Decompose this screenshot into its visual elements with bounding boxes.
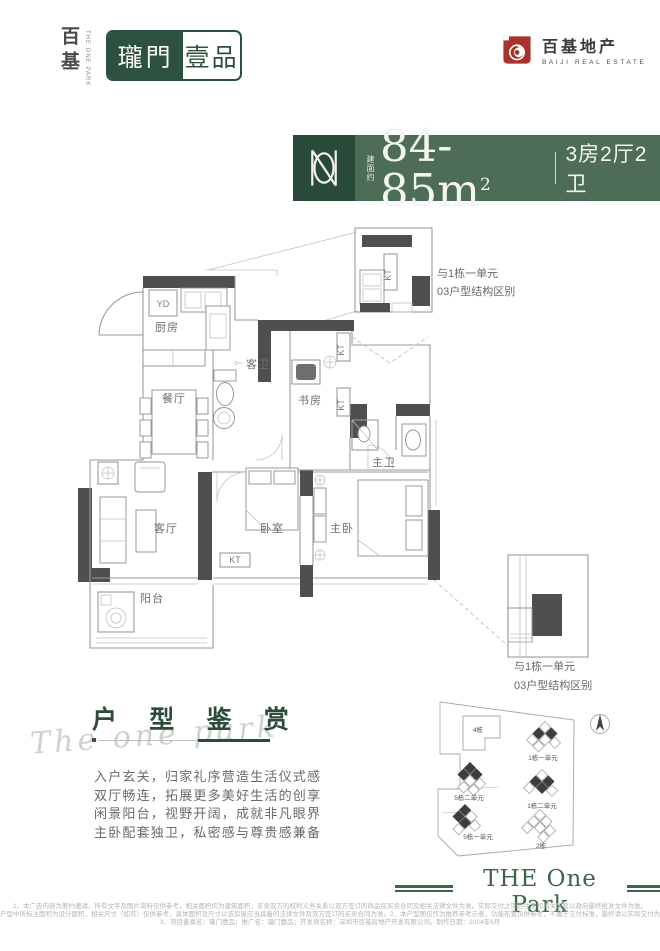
footer-banner-bars-left bbox=[395, 885, 453, 893]
label-kt-callout: KT bbox=[383, 269, 393, 281]
living-furniture bbox=[98, 462, 165, 563]
label-study: 书房 bbox=[298, 394, 322, 407]
label-living: 客厅 bbox=[154, 521, 178, 535]
balcony-fixtures bbox=[98, 592, 134, 632]
area-value: 84-85m2 bbox=[380, 123, 547, 213]
one-park-monogram-icon bbox=[302, 143, 346, 193]
label-kitchen: 厨房 bbox=[155, 321, 179, 334]
label-balcony: 阳台 bbox=[140, 591, 164, 605]
label-kt-shaft-1: KT bbox=[336, 344, 346, 356]
label-dining: 餐厅 bbox=[162, 391, 186, 405]
callout-top-detail bbox=[355, 228, 432, 312]
developer-name-en: BAIJI REAL ESTATE bbox=[542, 59, 646, 66]
project-logo: 瓏門 壹品 bbox=[106, 30, 242, 81]
layout-spec: 3房2厅2卫 bbox=[565, 138, 660, 198]
callout-bottom-line2: 03户型结构区别 bbox=[514, 678, 592, 692]
floor-plan: YD 厨房 餐厅 客卫 书房 客厅 卧室 主卧 主卫 阳台 KT KT KT K… bbox=[0, 210, 660, 710]
callout-bottom-line1: 与1栋一单元 bbox=[514, 659, 575, 673]
guest-bath-fixtures bbox=[214, 362, 244, 429]
label-guest-bath: 客卫 bbox=[246, 357, 270, 371]
developer-name-cn: 百基地产 bbox=[542, 33, 646, 57]
label-building-4: 4栋 bbox=[473, 725, 484, 734]
label-kt-shaft-2: KT bbox=[336, 399, 346, 411]
label-b1u2: 1栋二单元 bbox=[527, 801, 557, 810]
selling-point-4: 主卧配套独卫，私密感与尊贵感兼备 bbox=[94, 824, 321, 843]
label-master-bath: 主卫 bbox=[372, 456, 396, 469]
selling-point-3: 闲景阳台，视野开阔，成就非凡眼界 bbox=[94, 805, 321, 824]
callout-top-line1: 与1栋一单元 bbox=[437, 266, 498, 280]
footer-banner-bars-right bbox=[627, 885, 660, 893]
label-building-2: 2栋 bbox=[536, 841, 547, 850]
master-bedroom-furniture bbox=[314, 475, 428, 560]
developer-logo: 百基地产 BAIJI REAL ESTATE bbox=[500, 33, 646, 66]
bedroom-furniture bbox=[220, 468, 298, 567]
area-superscript: 2 bbox=[480, 175, 491, 195]
section-title: 户 型 鉴 赏 bbox=[92, 700, 302, 736]
disclaimer-line-2: 户型中所标注面积为设计面积，相关尺寸（如有）仅供参考，具体面积及尺寸以该房屋应当… bbox=[0, 911, 660, 919]
selling-points: 入户玄关，归家礼序营造生活仪式感 双厅畅连，拓展更多美好生活的创享 闲景阳台，视… bbox=[94, 768, 321, 842]
selling-point-2: 双厅畅连，拓展更多美好生活的创享 bbox=[94, 787, 321, 806]
cluster-1-1 bbox=[527, 721, 564, 758]
compass-icon bbox=[591, 714, 610, 734]
callout-bottom-detail bbox=[508, 555, 588, 657]
cluster-1-2 bbox=[524, 769, 561, 806]
developer-logo-icon bbox=[500, 34, 534, 66]
label-kt-bedroom: KT bbox=[229, 555, 241, 565]
area-prefix-label: 建面约 bbox=[365, 155, 376, 182]
label-b5u2: 5栋二单元 bbox=[454, 793, 484, 802]
brand-vertical-en: THE ONE PARK bbox=[84, 30, 90, 86]
label-b5u1: 5栋一单元 bbox=[463, 832, 493, 841]
project-logo-right: 壹品 bbox=[183, 32, 240, 79]
poster-page: 百基 THE ONE PARK 瓏門 壹品 百基地产 BAIJI REAL ES… bbox=[0, 0, 660, 951]
callout-top-line2: 03户型结构区别 bbox=[437, 284, 515, 298]
disclaimer-line-3: 3、项目备案名：瓏门壹品；推广名：瓏门壹品；开发商名称：深圳市百基房地产开发有限… bbox=[0, 919, 660, 927]
headline-banner: 建面约 84-85m2 3房2厅2卫 bbox=[293, 135, 660, 201]
label-yd: YD bbox=[157, 299, 170, 309]
monogram-box bbox=[293, 135, 355, 201]
label-b1u1: 1栋一单元 bbox=[528, 753, 558, 762]
project-logo-left: 瓏門 bbox=[108, 32, 183, 79]
label-bedroom: 卧室 bbox=[260, 521, 284, 535]
disclaimer-line-1: 1、本广告内容为要约邀请，所有文字及图片资料仅供参考，相关面积均为建筑面积，买卖… bbox=[0, 903, 660, 911]
banner-divider bbox=[555, 152, 556, 184]
label-master-bedroom: 主卧 bbox=[330, 522, 354, 535]
brand-vertical-cn: 百基 bbox=[55, 26, 82, 76]
section-divider bbox=[92, 738, 272, 742]
site-plan: 4栋 1栋一单元 5栋二单元 1栋二单元 5栋一单元 2栋 bbox=[428, 692, 653, 867]
cluster-2 bbox=[522, 809, 559, 846]
cluster-5-2 bbox=[452, 762, 489, 799]
footer-banner: THE One Park bbox=[395, 866, 660, 898]
selling-point-1: 入户玄关，归家礼序营造生活仪式感 bbox=[94, 768, 321, 787]
